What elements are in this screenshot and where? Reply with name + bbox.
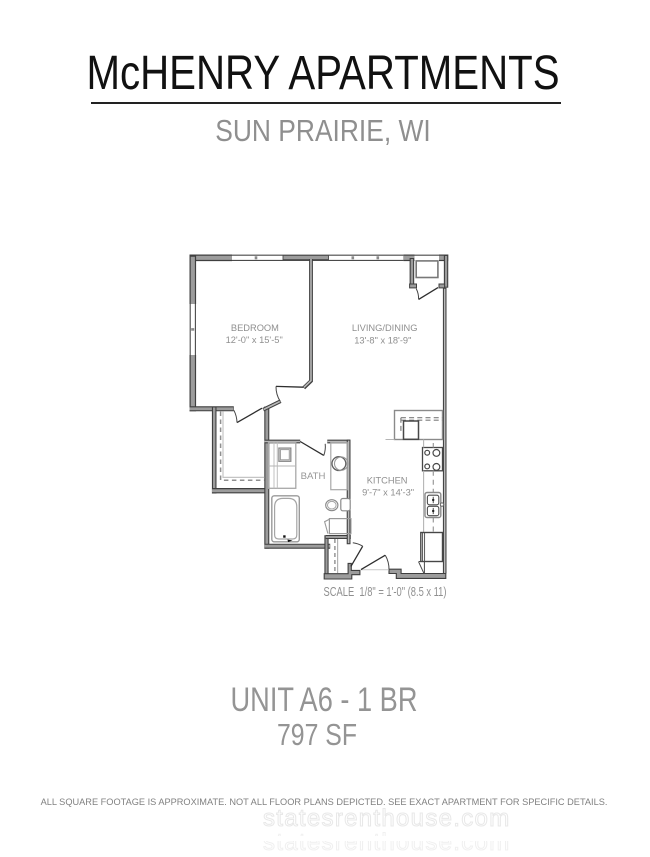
svg-text:KITCHEN: KITCHEN — [367, 476, 408, 486]
svg-text:BEDROOM: BEDROOM — [231, 323, 279, 333]
svg-text:BATH: BATH — [301, 471, 326, 482]
svg-text:LIVING/DINING: LIVING/DINING — [352, 323, 418, 333]
svg-text:13'-8" x 18'-9": 13'-8" x 18'-9" — [354, 336, 411, 346]
svg-text:12'-0" x 15'-5": 12'-0" x 15'-5" — [226, 335, 283, 345]
svg-text:9'-7" x 14'-3": 9'-7" x 14'-3" — [362, 487, 414, 497]
